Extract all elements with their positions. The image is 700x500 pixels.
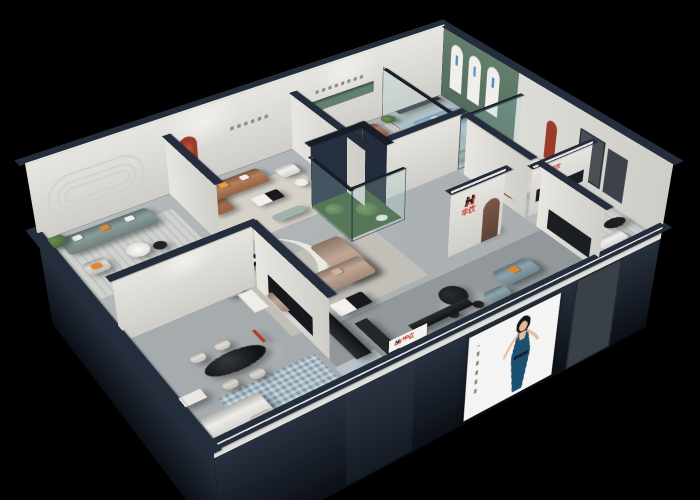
pillow — [98, 224, 110, 231]
arch-banner-logo-1 — [455, 55, 458, 66]
arch-banner-logo-3 — [491, 77, 494, 88]
pillow — [507, 266, 520, 274]
showroom-render-stage: H 华饮 H 华饮 — [0, 0, 700, 500]
arch-banner-logo-2 — [473, 66, 476, 77]
building-floor: H 华饮 H 华饮 — [39, 95, 661, 459]
brand-logo-mark-ledge: H — [395, 339, 400, 348]
arch-banner-1 — [449, 42, 463, 94]
arch-banner-2 — [467, 53, 482, 106]
pillow — [71, 234, 84, 242]
pillow — [123, 215, 135, 222]
seat-cushion-orange — [89, 262, 102, 270]
brand-sign-feature: H 华饮 — [453, 188, 485, 222]
dark-frame-panel-2 — [602, 148, 628, 204]
poster-vertical-text-dashes — [474, 345, 480, 394]
wall-lettering-left — [230, 114, 270, 131]
pillow — [238, 174, 250, 181]
